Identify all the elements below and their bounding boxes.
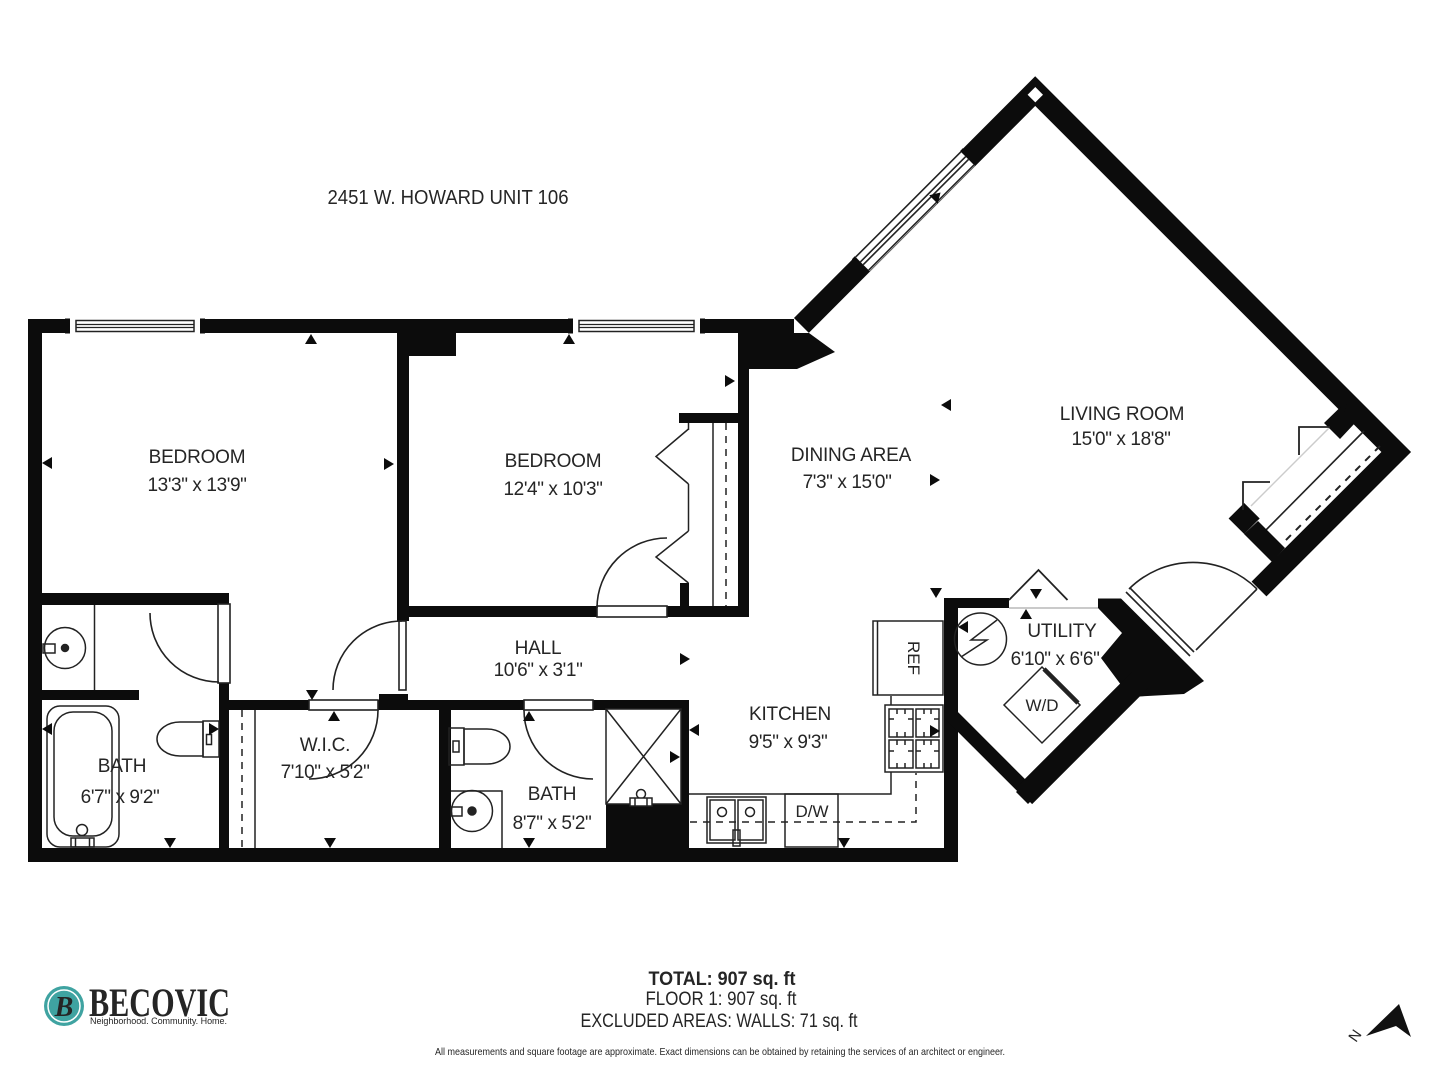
svg-text:2451 W. HOWARD UNIT 106: 2451 W. HOWARD UNIT 106 (328, 187, 569, 209)
svg-text:12'4" x 10'3": 12'4" x 10'3" (503, 479, 602, 500)
svg-text:15'0" x 18'8": 15'0" x 18'8" (1071, 429, 1170, 450)
svg-text:D/W: D/W (795, 802, 828, 821)
svg-text:All measurements and square fo: All measurements and square footage are … (435, 1046, 1005, 1058)
svg-text:Neighborhood. Community. Home.: Neighborhood. Community. Home. (90, 1016, 227, 1026)
svg-text:BEDROOM: BEDROOM (149, 447, 246, 468)
svg-text:REF: REF (904, 641, 923, 675)
svg-text:HALL: HALL (515, 638, 562, 659)
svg-text:6'10" x 6'6": 6'10" x 6'6" (1011, 649, 1100, 670)
svg-text:BEDROOM: BEDROOM (505, 451, 602, 472)
svg-text:BATH: BATH (98, 756, 146, 777)
svg-text:UTILITY: UTILITY (1027, 621, 1097, 642)
svg-text:FLOOR 1: 907 sq. ft: FLOOR 1: 907 sq. ft (646, 989, 798, 1010)
svg-text:8'7" x 5'2": 8'7" x 5'2" (513, 813, 592, 834)
svg-text:KITCHEN: KITCHEN (749, 704, 831, 725)
svg-text:BATH: BATH (528, 784, 576, 805)
svg-text:9'5" x 9'3": 9'5" x 9'3" (749, 732, 828, 753)
svg-text:TOTAL: 907 sq. ft: TOTAL: 907 sq. ft (649, 969, 797, 990)
svg-text:6'7" x 9'2": 6'7" x 9'2" (81, 787, 160, 808)
svg-text:B: B (54, 992, 74, 1023)
svg-text:W/D: W/D (1025, 696, 1058, 715)
svg-text:13'3" x 13'9": 13'3" x 13'9" (147, 475, 246, 496)
svg-text:EXCLUDED AREAS: WALLS: 71 sq.: EXCLUDED AREAS: WALLS: 71 sq. ft (581, 1011, 859, 1032)
svg-text:7'3" x 15'0": 7'3" x 15'0" (803, 472, 892, 493)
svg-text:LIVING ROOM: LIVING ROOM (1060, 404, 1184, 425)
svg-text:W.I.C.: W.I.C. (300, 735, 351, 756)
svg-text:10'6" x 3'1": 10'6" x 3'1" (494, 660, 583, 681)
svg-text:7'10" x 5'2": 7'10" x 5'2" (281, 762, 370, 783)
svg-text:DINING AREA: DINING AREA (791, 445, 912, 466)
